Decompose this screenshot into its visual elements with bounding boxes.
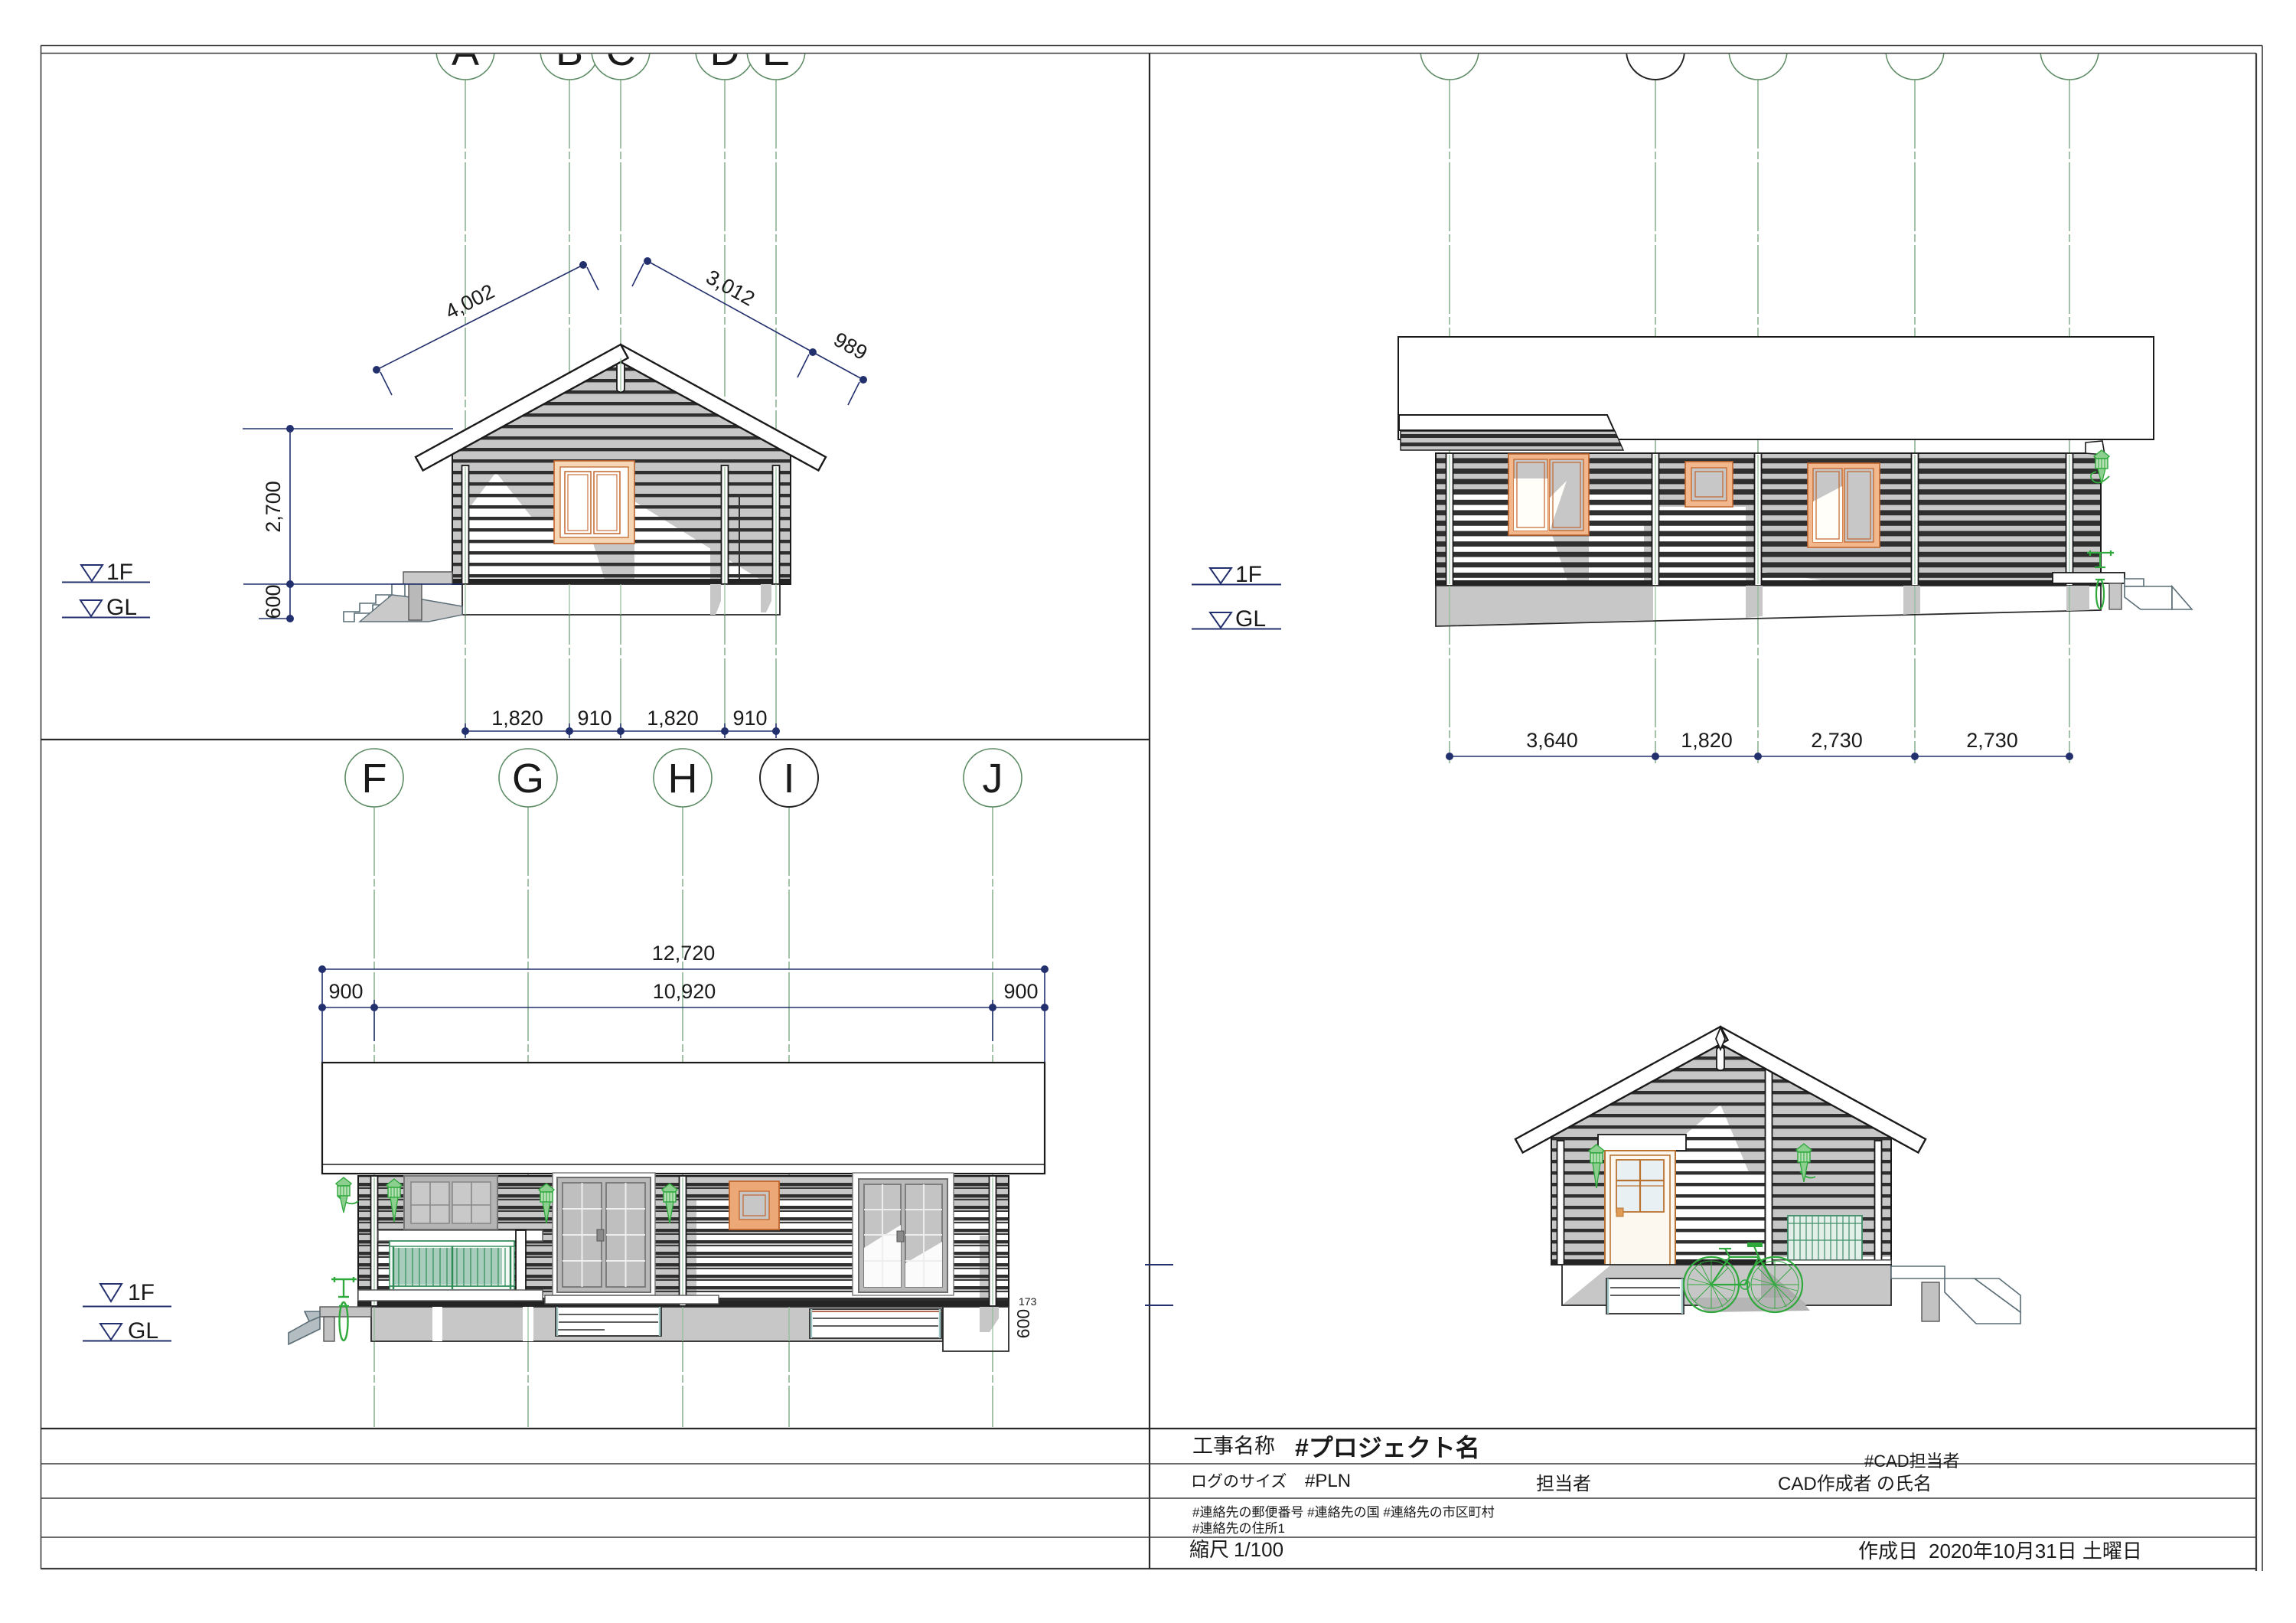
svg-text:10,920: 10,920	[653, 980, 716, 1003]
svg-text:3,012: 3,012	[703, 266, 759, 311]
svg-text:GL: GL	[128, 1318, 158, 1344]
svg-text:E: E	[762, 28, 790, 74]
svg-text:ログのサイズ: ログのサイズ	[1191, 1473, 1287, 1491]
svg-text:1,820: 1,820	[491, 707, 543, 730]
svg-text:GL: GL	[1235, 606, 1266, 632]
svg-text:#プロジェクト名: #プロジェクト名	[1295, 1434, 1480, 1461]
svg-text:CAD作成者: CAD作成者	[1778, 1474, 1872, 1494]
svg-text:縮尺: 縮尺	[1189, 1538, 1229, 1561]
svg-text:2,730: 2,730	[1811, 729, 1863, 752]
svg-text:2,730: 2,730	[1966, 729, 2018, 752]
svg-text:2,700: 2,700	[262, 481, 285, 533]
svg-text:910: 910	[577, 707, 612, 730]
svg-text:600: 600	[1013, 1309, 1033, 1338]
svg-text:#連絡先の住所1: #連絡先の住所1	[1192, 1521, 1285, 1536]
svg-text:1/100: 1/100	[1234, 1538, 1283, 1561]
svg-text:#PLN: #PLN	[1305, 1471, 1351, 1491]
svg-text:900: 900	[328, 980, 363, 1003]
svg-text:B: B	[556, 28, 583, 74]
svg-text:I: I	[783, 756, 794, 802]
svg-text:作成日: 作成日	[1858, 1540, 1918, 1563]
svg-text:1F: 1F	[128, 1280, 155, 1305]
svg-text:#連絡先の郵便番号 #連絡先の国 #連絡先の市区町村: #連絡先の郵便番号 #連絡先の国 #連絡先の市区町村	[1192, 1505, 1495, 1520]
svg-text:3,640: 3,640	[1526, 729, 1578, 752]
svg-text:H: H	[668, 756, 698, 802]
svg-text:J: J	[983, 756, 1003, 802]
svg-text:F: F	[362, 756, 387, 802]
svg-text:D: D	[710, 28, 740, 74]
svg-text:600: 600	[262, 584, 285, 619]
svg-text:4,002: 4,002	[442, 279, 498, 323]
svg-text:1,820: 1,820	[1681, 729, 1733, 752]
svg-text:989: 989	[830, 328, 871, 364]
svg-text:C: C	[606, 28, 636, 74]
svg-text:1F: 1F	[106, 560, 133, 585]
svg-text:A: A	[452, 28, 479, 74]
svg-text:1F: 1F	[1235, 562, 1262, 587]
svg-text:173: 173	[1019, 1295, 1037, 1308]
svg-text:の氏名: の氏名	[1877, 1474, 1932, 1494]
svg-text:910: 910	[732, 707, 767, 730]
svg-text:工事名称: 工事名称	[1192, 1435, 1275, 1458]
svg-text:担当者: 担当者	[1536, 1474, 1591, 1494]
svg-text:2020年10月31日 土曜日: 2020年10月31日 土曜日	[1929, 1540, 2142, 1563]
svg-text:1,820: 1,820	[647, 707, 699, 730]
svg-text:G: G	[512, 756, 544, 802]
svg-text:12,720: 12,720	[652, 942, 716, 965]
svg-text:GL: GL	[106, 595, 137, 620]
svg-text:#CAD担当者: #CAD担当者	[1864, 1452, 1960, 1471]
svg-text:900: 900	[1003, 980, 1038, 1003]
